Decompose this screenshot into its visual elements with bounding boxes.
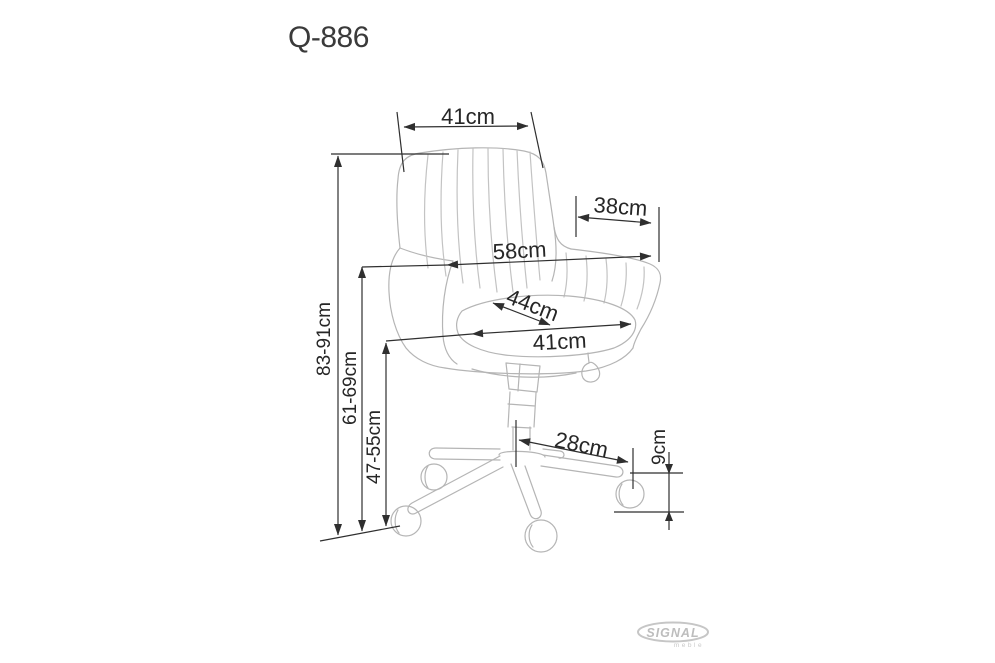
dim-label-arm-height: 61-69cm [340,351,361,425]
brand-logo: SIGNAL meble [638,623,708,650]
dimension-labels: 41cm 38cm 58cm 44cm 41cm 83-91cm 61-69cm… [314,104,670,484]
dim-label-seat-width: 41cm [532,328,587,356]
dim-overall-height [331,154,449,535]
dim-label-overall-height: 83-91cm [314,302,335,376]
caster-front-center [525,520,557,552]
page-title: Q-886 [288,21,369,54]
dim-label-seat-height: 47-55cm [364,410,385,484]
dim-label-overall-width: 58cm [492,237,547,265]
chair-adjust-lever [588,353,589,363]
dim-label-arm-depth: 38cm [593,192,648,221]
dim-label-seat-depth: 44cm [503,284,562,327]
chair-casters [391,464,644,552]
technical-drawing-canvas: Q-886 [0,0,995,663]
caster-right [616,480,644,508]
dim-label-back-width: 41cm [441,104,495,129]
chair-backrest [397,148,571,249]
logo-sub-text: meble [674,642,704,649]
backrest-stitch-channels [425,149,645,309]
dim-label-caster-height: 9cm [649,429,670,465]
dim-seat-width [386,324,631,341]
logo-brand-text: SIGNAL [646,626,699,640]
floor-reference-line [320,526,400,541]
